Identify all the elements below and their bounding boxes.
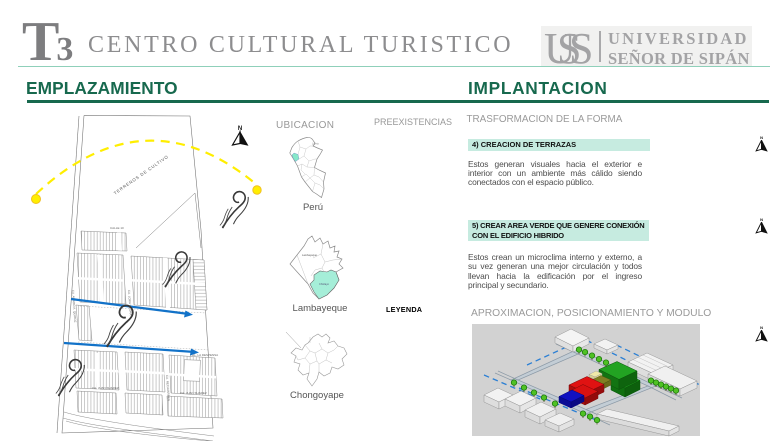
- svg-text:N: N: [760, 135, 763, 140]
- svg-text:Chiclayo: Chiclayo: [319, 282, 330, 286]
- svg-text:CA. AMADO A. QUIROZ: CA. AMADO A. QUIROZ: [71, 290, 77, 323]
- svg-text:N: N: [760, 325, 763, 330]
- svg-text:Lambayeque: Lambayeque: [302, 253, 318, 257]
- svg-text:CA. RECAVARREN: CA. RECAVARREN: [165, 375, 171, 401]
- svg-text:Loreto: Loreto: [312, 143, 319, 146]
- svg-text:CA. JUAN SUAREZ: CA. JUAN SUAREZ: [92, 386, 119, 390]
- svg-text:N: N: [760, 217, 763, 222]
- svg-text:CALLE 10: CALLE 10: [110, 226, 124, 230]
- svg-text:CA. JUAN SUAREZ: CA. JUAN SUAREZ: [180, 391, 207, 395]
- svg-text:TERRENOS DE CULTIVO: TERRENOS DE CULTIVO: [113, 154, 170, 196]
